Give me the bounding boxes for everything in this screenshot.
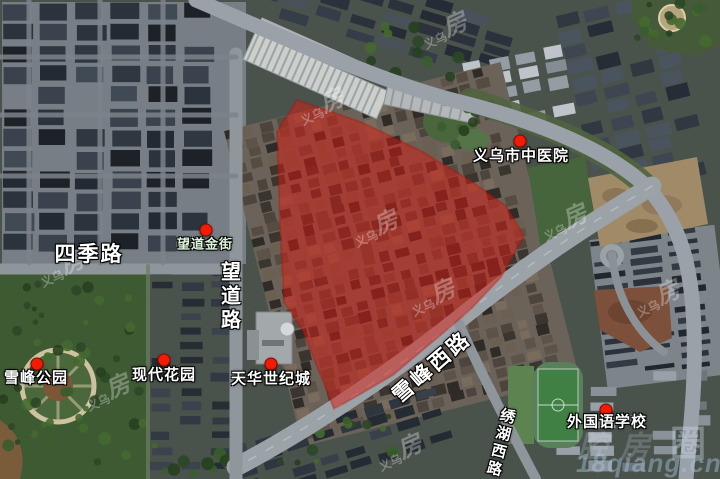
satellite-map-image: 义乌房 义乌房 义乌房 义乌房 义乌房 义乌房 义乌房 义乌房 义乌房 义乌市中… — [0, 0, 720, 479]
sports-field — [508, 362, 583, 448]
satellite-canvas — [0, 0, 720, 479]
